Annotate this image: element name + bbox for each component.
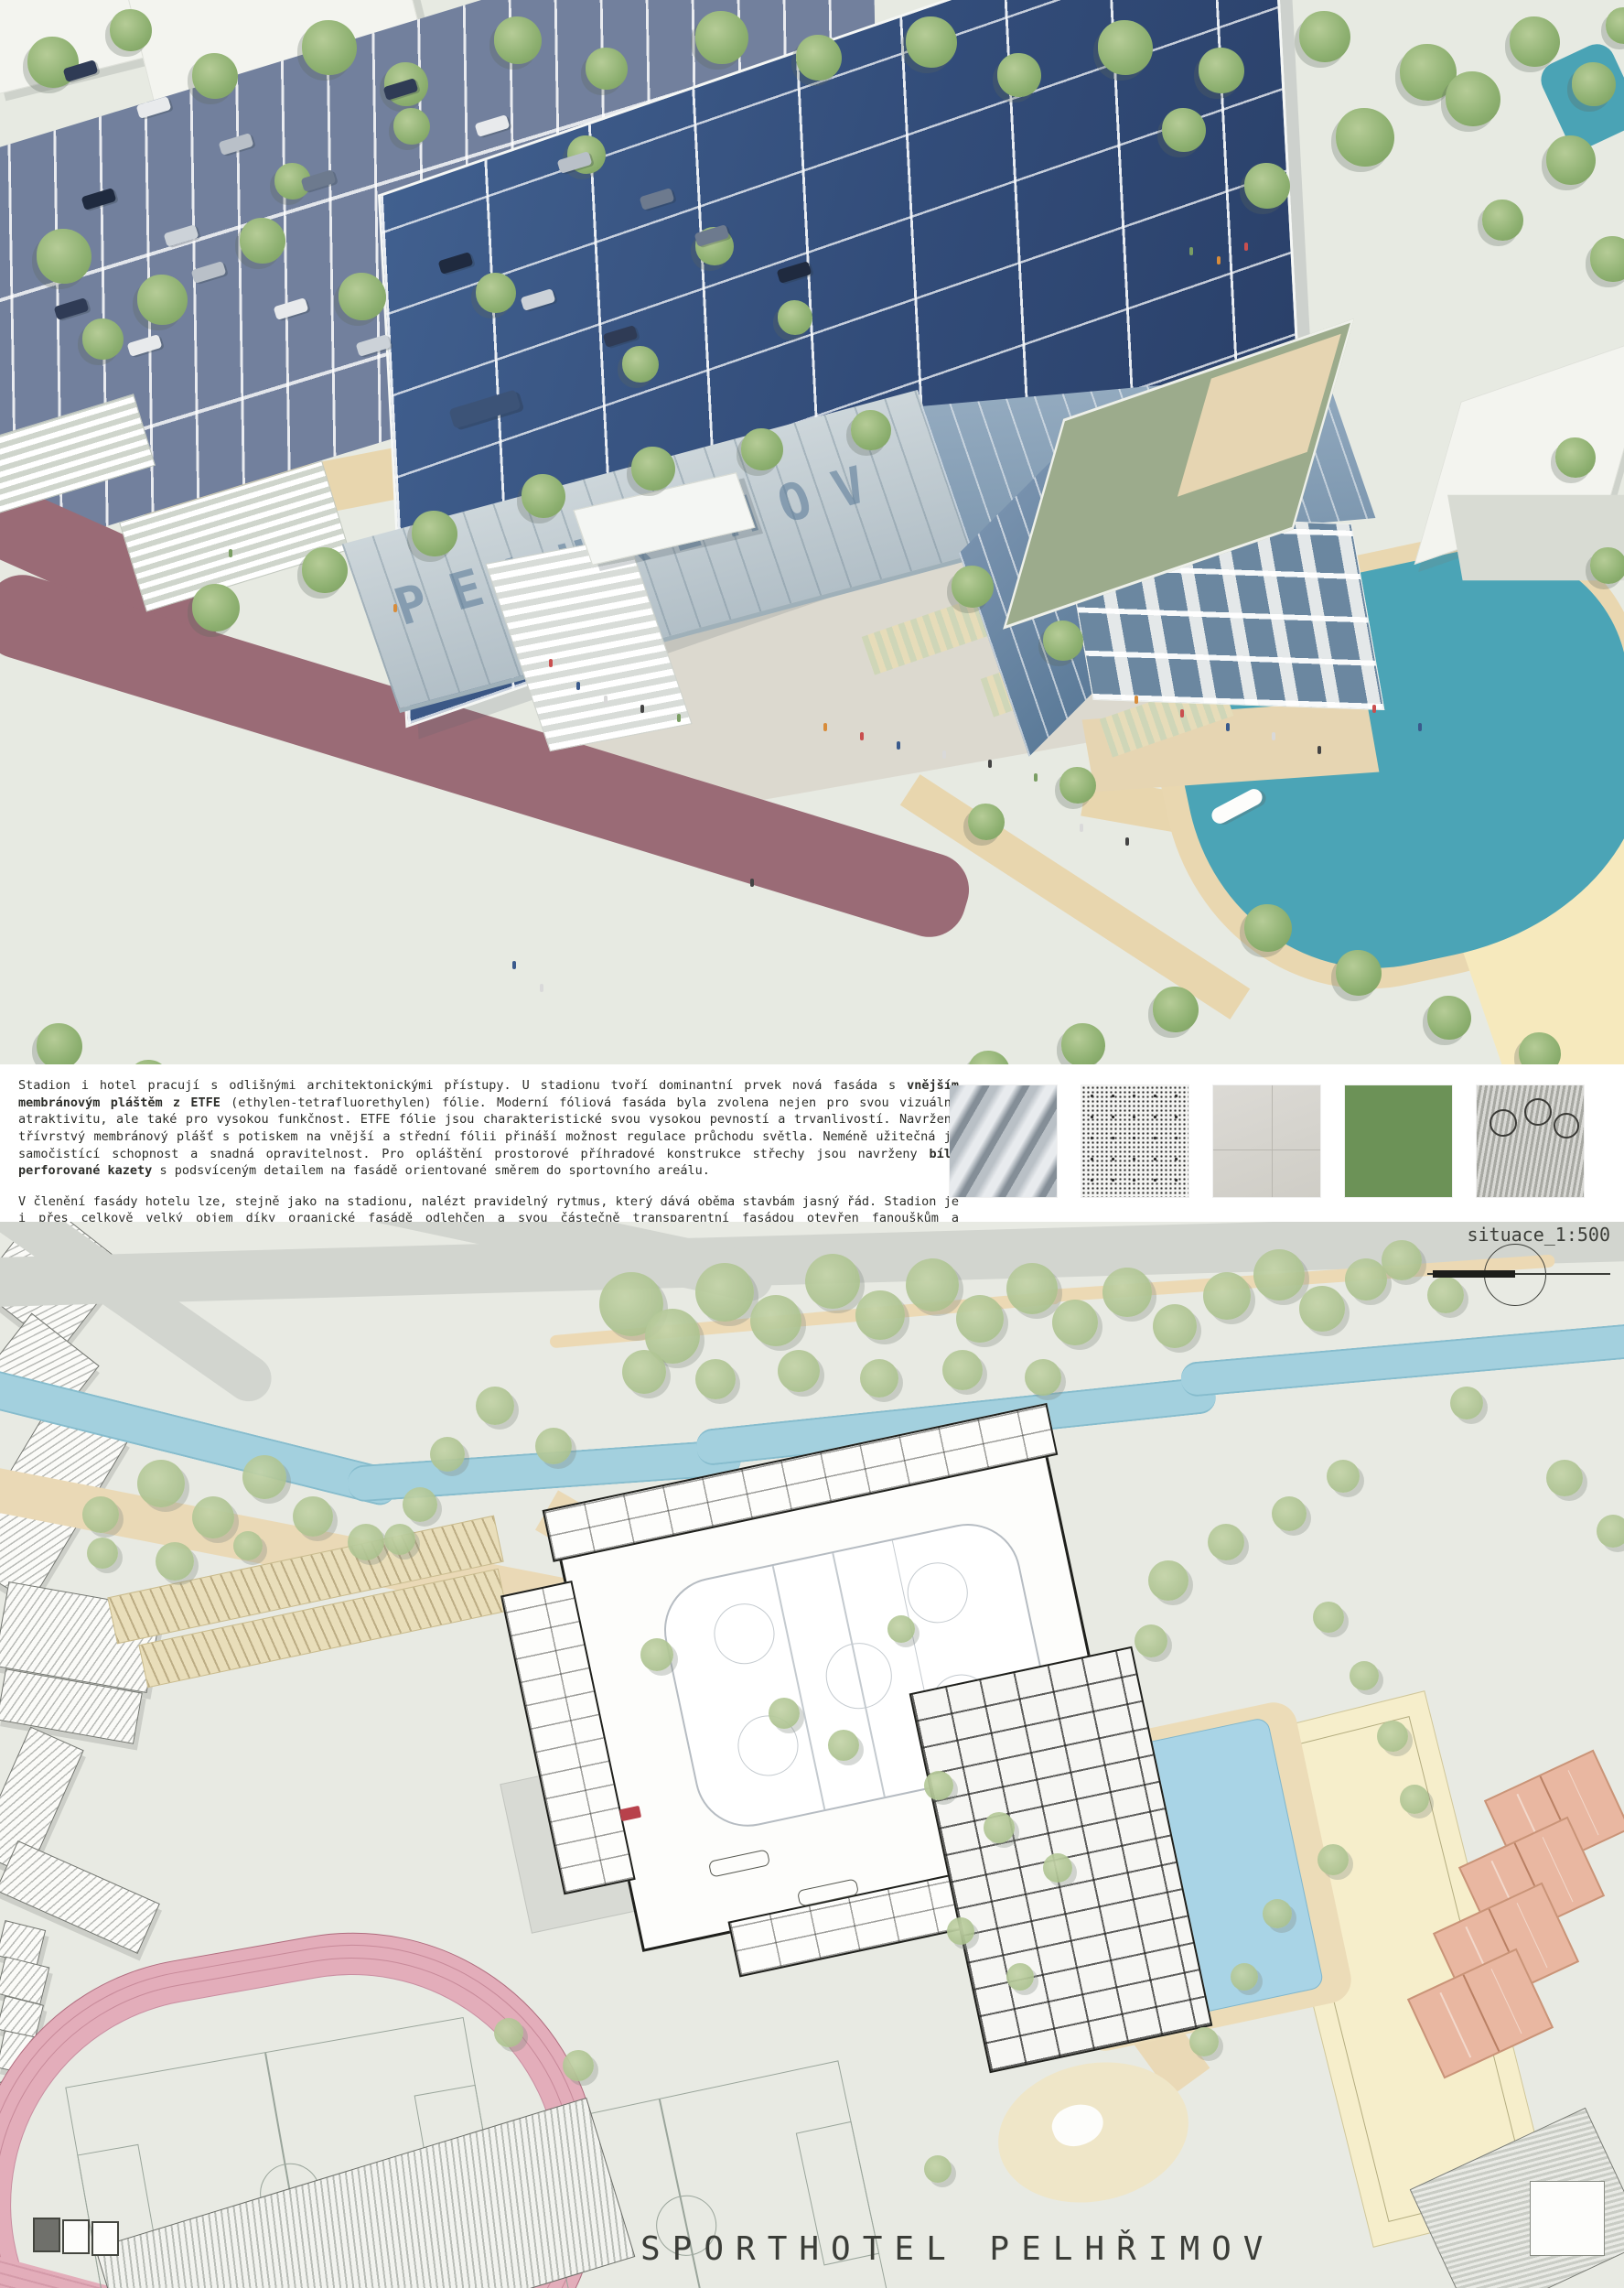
tree	[1006, 1263, 1058, 1314]
person	[942, 750, 946, 759]
tree	[851, 410, 891, 450]
tree	[1253, 1249, 1305, 1300]
person	[549, 659, 553, 667]
legend-swatch-outline	[91, 2221, 119, 2256]
tree	[1162, 108, 1206, 152]
person	[1244, 243, 1248, 251]
tree	[1427, 996, 1471, 1040]
tree	[1148, 1560, 1188, 1601]
person	[1317, 746, 1321, 754]
site-plan: situace_1:500 SPORTHOTEL PELHŘIMOV	[0, 1222, 1624, 2288]
tree	[906, 16, 957, 68]
tree	[293, 1496, 333, 1537]
tree	[1482, 200, 1523, 241]
tree	[1199, 48, 1244, 93]
tree	[302, 20, 357, 75]
tree	[1025, 1359, 1061, 1396]
tree	[1135, 1624, 1167, 1657]
tree	[156, 1542, 194, 1581]
tree	[1299, 11, 1350, 62]
tree	[1450, 1387, 1483, 1419]
tree	[1244, 904, 1292, 952]
tree	[1555, 437, 1596, 478]
center-circle	[820, 1636, 898, 1714]
material-photo-bike-racks	[1477, 1085, 1584, 1197]
tree	[1208, 1524, 1244, 1560]
tree	[1043, 621, 1083, 661]
tree	[968, 804, 1005, 840]
person	[1372, 705, 1376, 713]
tree	[1597, 1515, 1624, 1548]
tree	[1006, 1963, 1034, 1991]
tree	[384, 1524, 415, 1555]
tree	[695, 1359, 736, 1399]
person	[1418, 723, 1422, 731]
paragraph-hotel: V členění fasády hotelu lze, stejně jako…	[18, 1193, 959, 1222]
board-title: SPORTHOTEL PELHŘIMOV	[640, 2230, 1274, 2268]
tree	[640, 1638, 673, 1671]
person	[823, 723, 827, 731]
legend-swatch-existing	[33, 2218, 60, 2252]
tree	[1189, 2027, 1219, 2056]
tree	[1098, 20, 1153, 75]
tree	[563, 2050, 594, 2081]
tree	[1382, 1240, 1422, 1280]
tree	[622, 1350, 666, 1394]
river	[1179, 1319, 1624, 1398]
person	[750, 879, 754, 887]
tree	[393, 108, 430, 145]
presentation-board: PELHŘIMOV Stadion i hotel pr	[0, 0, 1624, 2288]
tree	[796, 35, 842, 81]
tree	[952, 566, 994, 608]
tree	[82, 1496, 119, 1533]
description-text-block: Stadion i hotel pracují s odlišnými arch…	[18, 1077, 959, 1222]
tree	[1203, 1272, 1251, 1320]
tree	[695, 1263, 754, 1322]
tree	[1061, 1023, 1105, 1064]
tree	[622, 346, 659, 383]
person	[1125, 837, 1129, 846]
material-photo-etfe-cushions	[950, 1085, 1057, 1197]
person	[512, 961, 516, 969]
person	[540, 984, 543, 992]
tree	[494, 2018, 523, 2047]
tree	[339, 273, 386, 320]
faceoff-circle	[901, 1557, 973, 1628]
tree	[924, 1771, 953, 1800]
tree	[137, 1460, 185, 1507]
tree	[1052, 1300, 1098, 1345]
tree	[1427, 1277, 1464, 1313]
tree	[535, 1428, 572, 1464]
tree	[1336, 950, 1382, 996]
material-photo-white-concrete	[1213, 1085, 1320, 1197]
tree	[302, 547, 348, 593]
tree	[1043, 1853, 1072, 1883]
tree	[956, 1295, 1004, 1343]
person	[860, 732, 864, 740]
bike-icon	[1524, 1098, 1552, 1126]
person	[1272, 732, 1275, 740]
tree	[1350, 1661, 1379, 1690]
tree	[778, 1350, 820, 1392]
tree	[348, 1524, 384, 1560]
tree	[1059, 767, 1096, 804]
tree	[750, 1295, 801, 1346]
tree	[1299, 1286, 1345, 1332]
legend-swatch-new	[62, 2219, 90, 2254]
tree	[586, 48, 628, 90]
material-photo-perforated-panel	[1081, 1085, 1188, 1197]
bike-icon	[1554, 1113, 1579, 1139]
north-arrow-bar	[1433, 1270, 1515, 1278]
person	[1080, 824, 1083, 832]
tree	[1317, 1844, 1349, 1875]
tree	[242, 1455, 286, 1499]
scale-label: situace_1:500	[1432, 1224, 1610, 1246]
tree	[887, 1615, 915, 1643]
person	[393, 604, 397, 612]
person	[897, 741, 900, 750]
tree	[522, 474, 565, 518]
tree	[924, 2155, 952, 2183]
tree	[192, 584, 240, 631]
tree	[906, 1258, 959, 1311]
person	[229, 549, 232, 557]
material-photo-grass-pavers	[1345, 1085, 1452, 1197]
tree	[1272, 1496, 1307, 1531]
tree	[769, 1698, 800, 1729]
tree	[1377, 1721, 1408, 1752]
tree	[1263, 1899, 1292, 1928]
tree	[1400, 1785, 1429, 1814]
tree	[984, 1812, 1015, 1843]
tree	[778, 300, 812, 335]
person	[1135, 696, 1138, 704]
tree	[37, 229, 91, 284]
bike-icon	[1490, 1109, 1517, 1137]
tree	[476, 1387, 514, 1425]
tree	[110, 9, 152, 51]
tree	[1345, 1258, 1387, 1300]
person	[604, 696, 608, 704]
tree	[1446, 71, 1500, 126]
tree	[1153, 987, 1199, 1032]
tree	[860, 1359, 898, 1398]
tree	[192, 53, 238, 99]
paragraph-facades: Stadion i hotel pracují s odlišnými arch…	[18, 1077, 959, 1180]
tree	[37, 1023, 82, 1064]
tree	[233, 1531, 263, 1560]
tree	[137, 275, 188, 325]
tree	[1590, 236, 1624, 282]
tree	[968, 1051, 1010, 1064]
tree	[82, 318, 124, 360]
tree	[1510, 16, 1560, 67]
tree	[741, 428, 783, 470]
tree	[1313, 1602, 1344, 1633]
tree	[403, 1487, 437, 1522]
tree	[1327, 1460, 1360, 1493]
tree	[476, 273, 516, 313]
small-building-outline	[1530, 2181, 1605, 2256]
tree	[631, 447, 675, 491]
tree	[1336, 108, 1394, 167]
person	[1226, 723, 1230, 731]
tree	[1606, 7, 1624, 44]
faceoff-circle	[708, 1598, 780, 1669]
tree	[1231, 1963, 1258, 1991]
tree	[828, 1730, 859, 1761]
tree	[855, 1290, 905, 1340]
tree	[997, 53, 1041, 97]
tree	[1590, 547, 1624, 584]
tree	[942, 1350, 983, 1390]
tree	[1546, 1460, 1583, 1496]
tree	[1546, 135, 1596, 185]
axonometric-render: PELHŘIMOV	[0, 0, 1624, 1064]
person	[640, 705, 644, 713]
description-band: Stadion i hotel pracují s odlišnými arch…	[0, 1064, 1624, 1222]
tree	[1153, 1304, 1197, 1348]
tree	[412, 511, 457, 556]
person	[1034, 773, 1038, 782]
tree	[240, 218, 285, 264]
tree	[1102, 1268, 1152, 1317]
tree	[947, 1917, 974, 1945]
person	[988, 760, 992, 768]
person	[1189, 247, 1193, 255]
tree	[494, 16, 542, 64]
tree	[1572, 62, 1616, 106]
person	[1180, 709, 1184, 718]
tree	[695, 11, 748, 64]
tree	[87, 1538, 118, 1569]
tree	[430, 1437, 465, 1472]
tree	[1244, 163, 1290, 209]
person	[576, 682, 580, 690]
person	[677, 714, 681, 722]
person	[1217, 256, 1221, 264]
tree	[805, 1254, 860, 1309]
tree	[192, 1496, 234, 1538]
